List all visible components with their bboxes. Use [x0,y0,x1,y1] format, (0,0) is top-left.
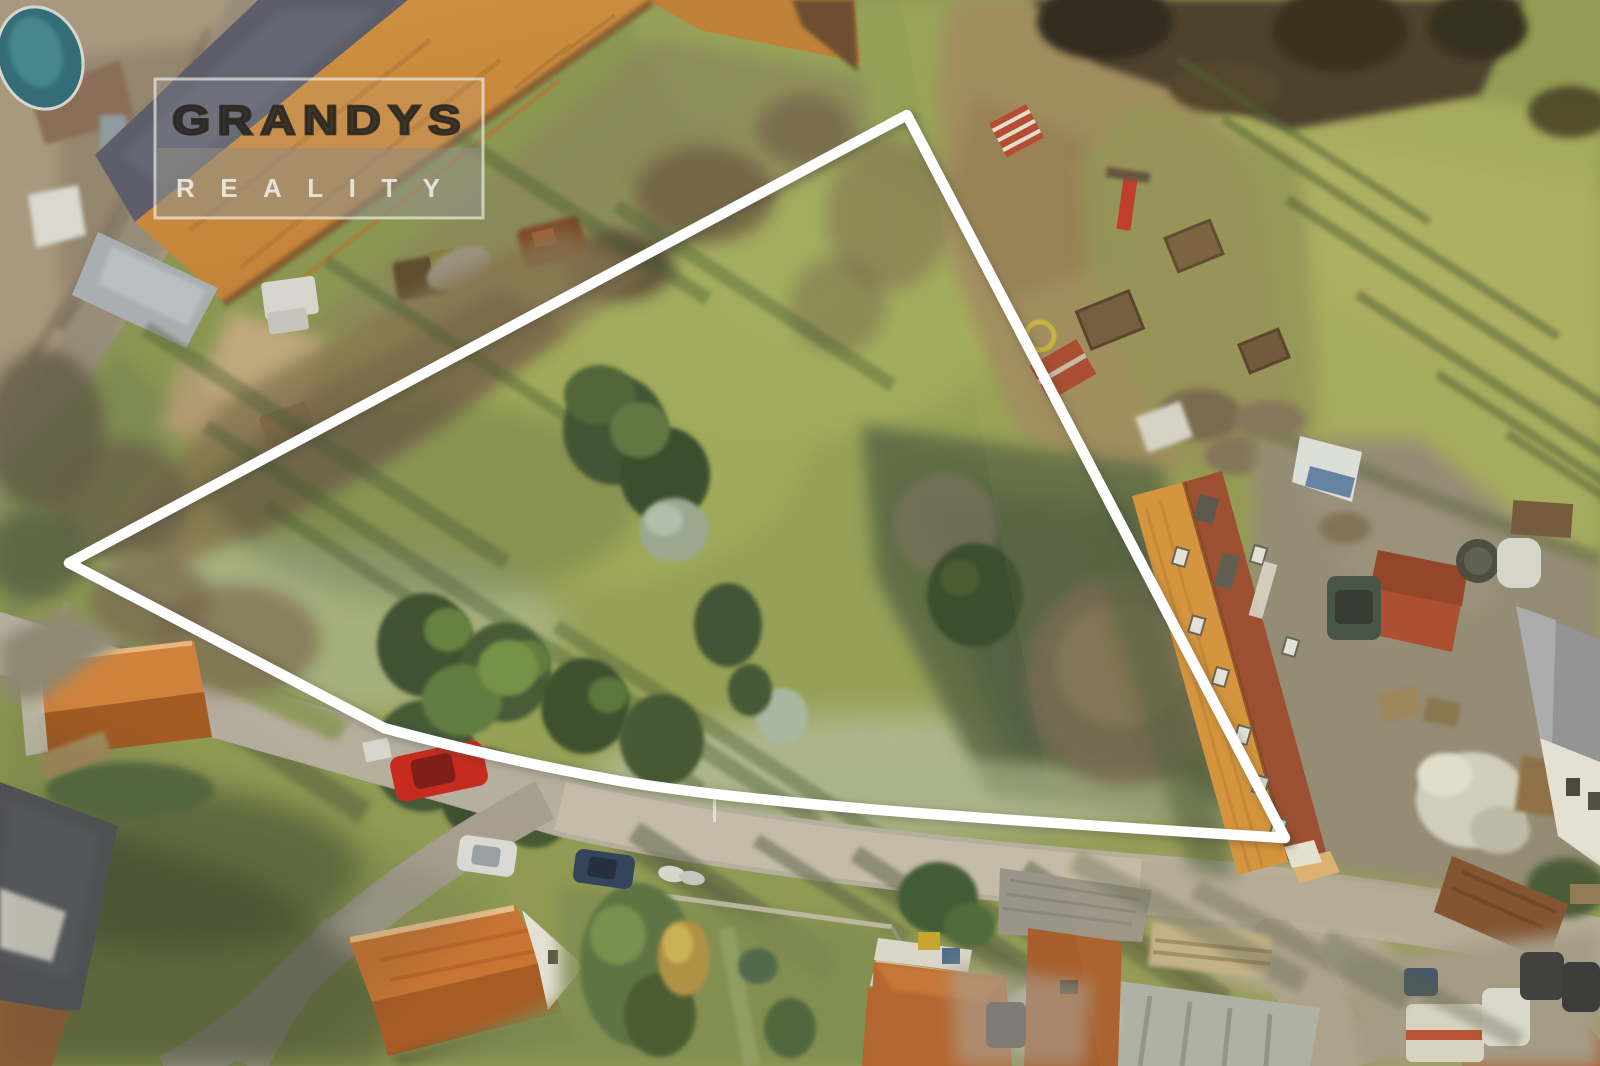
svg-text:GRANDYS: GRANDYS [172,97,468,143]
